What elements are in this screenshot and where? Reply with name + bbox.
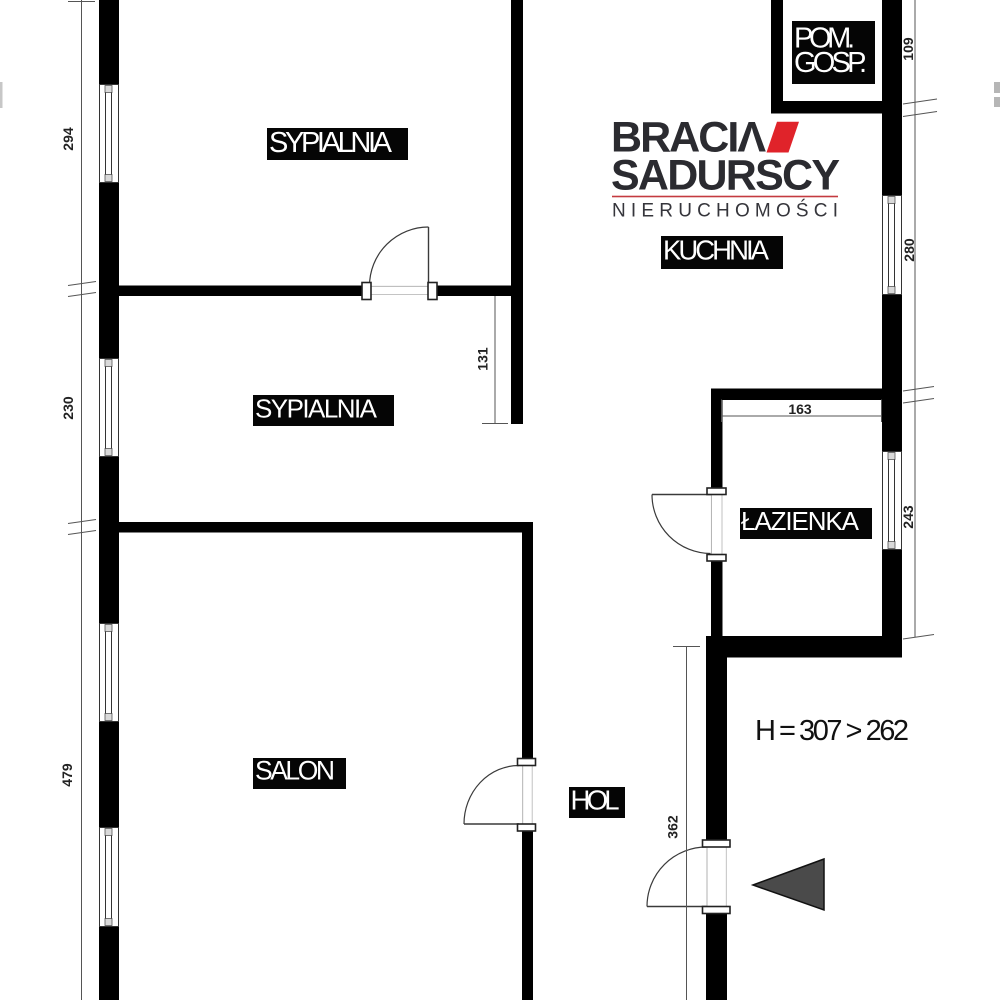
svg-text:SADURSCY: SADURSCY (611, 151, 840, 199)
svg-text:SYPIALNIA: SYPIALNIA (269, 127, 393, 159)
svg-text:362: 362 (665, 815, 681, 839)
svg-text:ŁAZIENKA: ŁAZIENKA (741, 506, 860, 536)
svg-text:SALON: SALON (255, 756, 335, 786)
svg-text:479: 479 (59, 763, 75, 787)
svg-text:109: 109 (900, 37, 916, 61)
svg-text:HOL: HOL (571, 785, 620, 816)
svg-text:NIERUCHOMOŚCI: NIERUCHOMOŚCI (612, 200, 838, 222)
svg-text:243: 243 (900, 505, 916, 529)
svg-text:GOSP.: GOSP. (794, 47, 867, 79)
svg-text:294: 294 (60, 127, 76, 151)
svg-text:KUCHNIA: KUCHNIA (663, 235, 770, 266)
svg-text:SYPIALNIA: SYPIALNIA (255, 394, 378, 424)
svg-text:163: 163 (788, 401, 812, 417)
svg-text:H = 307 > 262: H = 307 > 262 (755, 715, 909, 747)
svg-text:280: 280 (901, 238, 917, 262)
svg-text:230: 230 (60, 396, 76, 420)
svg-text:131: 131 (475, 347, 491, 371)
